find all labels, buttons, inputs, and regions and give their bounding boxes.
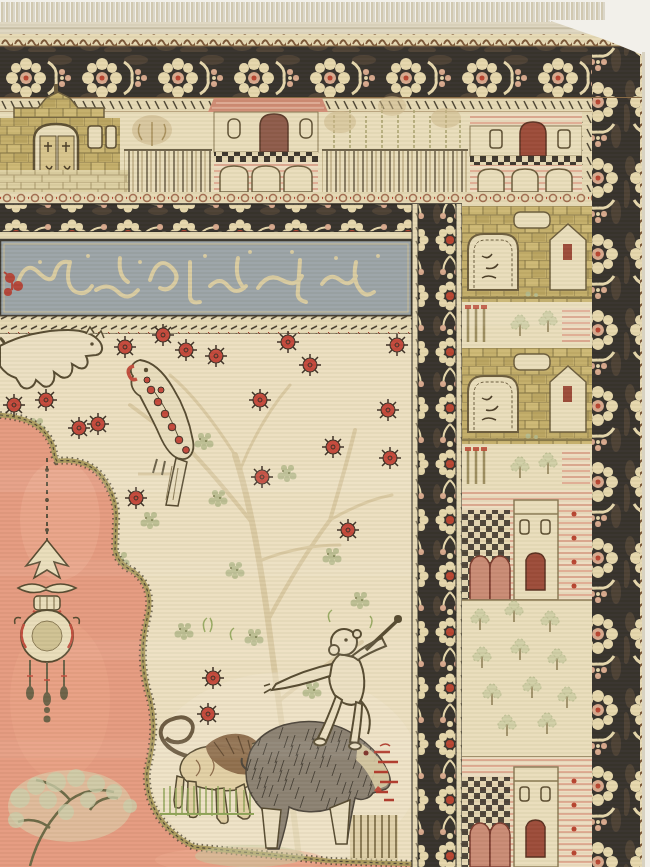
fringe xyxy=(0,2,606,24)
rug-photo xyxy=(0,0,650,867)
rug xyxy=(0,2,646,867)
photo-right-sliver xyxy=(645,0,650,867)
rug-illustration xyxy=(0,0,650,867)
selvage xyxy=(642,52,645,867)
